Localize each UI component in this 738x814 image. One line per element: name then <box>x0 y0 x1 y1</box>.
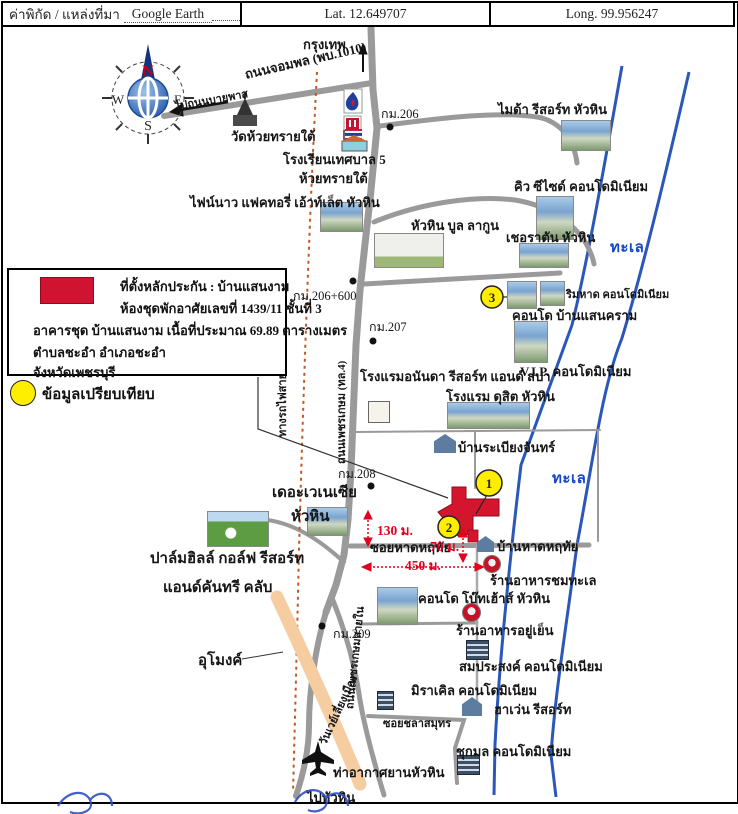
signature-scribble-right <box>295 790 348 811</box>
map-document-page: ค่าพิกัด / แหล่งที่มา Google Earth Lat. … <box>0 0 738 814</box>
ink-layer <box>0 0 738 814</box>
signature-scribble-left <box>58 793 112 813</box>
